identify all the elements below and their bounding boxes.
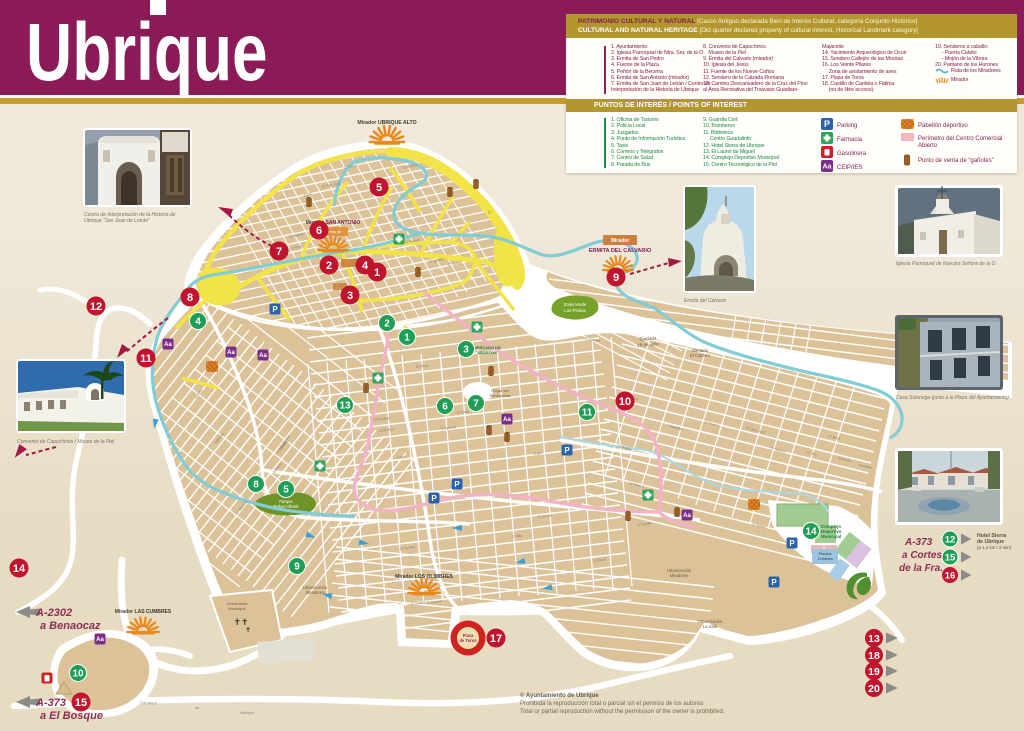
- svg-text:a Benaocaz: a Benaocaz: [40, 620, 101, 632]
- svg-text:10: 10: [619, 396, 631, 408]
- svg-text:a Cortes: a Cortes: [902, 550, 942, 561]
- svg-text:P: P: [771, 578, 777, 587]
- svg-text:Ubrique “San Juan de Letrán”: Ubrique “San Juan de Letrán”: [84, 218, 150, 224]
- svg-text:P: P: [789, 539, 795, 548]
- svg-text:A-373: A-373: [35, 697, 66, 709]
- svg-text:Pensionista: Pensionista: [490, 393, 511, 398]
- svg-text:15: 15: [945, 552, 956, 563]
- svg-text:Aa: Aa: [164, 342, 172, 348]
- svg-text:13: 13: [339, 401, 351, 412]
- svg-text:Aa: Aa: [227, 350, 235, 356]
- svg-text:Abierto: Abierto: [918, 143, 938, 149]
- svg-text:Iglesia Parroquial de Nuestra: Iglesia Parroquial de Nuestra Señora de …: [896, 261, 996, 267]
- svg-text:9: 9: [613, 272, 619, 284]
- svg-text:10: 10: [72, 669, 84, 680]
- svg-text:Carretera: Carretera: [140, 700, 158, 706]
- svg-text:2: 2: [326, 260, 332, 272]
- svg-text:Municipal: Municipal: [821, 534, 841, 539]
- svg-text:2: 2: [384, 319, 390, 330]
- svg-text:de: de: [195, 705, 200, 710]
- svg-text:14: 14: [805, 527, 817, 538]
- svg-text:Aa: Aa: [823, 164, 832, 171]
- svg-text:de la Fra.: de la Fra.: [899, 563, 943, 574]
- svg-text:Mirador LAS CUMBRES: Mirador LAS CUMBRES: [115, 609, 172, 615]
- svg-text:Casa Solariega (junto a la Pla: Casa Solariega (junto a la Plaza del Ayu…: [896, 395, 1009, 401]
- svg-text:18: 18: [868, 650, 880, 662]
- svg-text:ERMITA DEL CALVARIO: ERMITA DEL CALVARIO: [589, 248, 652, 254]
- svg-text:ABASTOS: ABASTOS: [477, 350, 497, 355]
- svg-text:19: 19: [868, 666, 880, 678]
- svg-text:Prohibida la reproducción tota: Prohibida la reproducción total o parcia…: [520, 701, 703, 707]
- svg-text:Convento de Capuchinos / Museo: Convento de Capuchinos / Museo de la Pie…: [17, 439, 115, 445]
- svg-text:de Toros: de Toros: [459, 638, 477, 643]
- svg-text:Ermita del Calvario: Ermita del Calvario: [684, 298, 726, 304]
- svg-text:a El Bosque: a El Bosque: [40, 710, 103, 722]
- svg-text:Aa: Aa: [683, 513, 691, 519]
- svg-text:(a 1,4 km / 2 min): (a 1,4 km / 2 min): [977, 545, 1012, 550]
- svg-text:Total or partial reproduction: Total or partial reproduction without th…: [520, 709, 725, 715]
- svg-text:Ubrique: Ubrique: [240, 710, 255, 715]
- svg-text:Gasolinera: Gasolinera: [837, 151, 867, 157]
- svg-text:A-2302: A-2302: [35, 607, 72, 619]
- svg-text:Perímetro del Centro Comercial: Perímetro del Centro Comercial: [918, 136, 1002, 142]
- svg-text:13: 13: [868, 633, 880, 645]
- svg-text:14: 14: [13, 563, 26, 575]
- svg-text:1: 1: [374, 267, 380, 279]
- svg-text:El Cabrero: El Cabrero: [690, 353, 711, 358]
- svg-text:12: 12: [945, 534, 956, 545]
- svg-text:Aa: Aa: [503, 417, 511, 423]
- svg-text:P: P: [824, 119, 830, 129]
- svg-text:15: 15: [75, 697, 87, 709]
- svg-text:La Salá: La Salá: [703, 624, 718, 629]
- svg-text:A-373: A-373: [904, 537, 933, 548]
- svg-text:12: 12: [90, 301, 102, 313]
- svg-text:Parking: Parking: [837, 123, 857, 129]
- svg-text:7: 7: [473, 399, 479, 410]
- svg-text:Aa: Aa: [96, 637, 104, 643]
- svg-text:1: 1: [404, 333, 410, 344]
- svg-text:11: 11: [582, 408, 593, 419]
- svg-text:17: 17: [490, 633, 502, 645]
- svg-text:11: 11: [140, 353, 152, 365]
- svg-text:© Ayuntamiento de Ubrique: © Ayuntamiento de Ubrique: [520, 692, 599, 699]
- svg-text:5: 5: [283, 485, 289, 496]
- svg-text:P: P: [272, 305, 278, 314]
- svg-text:CEIP/IES: CEIP/IES: [837, 165, 862, 171]
- svg-text:P: P: [454, 480, 460, 489]
- svg-text:Miradores: Miradores: [670, 573, 689, 578]
- svg-text:P: P: [431, 494, 437, 503]
- svg-text:Pabellón deportivo: Pabellón deportivo: [918, 123, 968, 129]
- svg-text:Miradores: Miradores: [306, 590, 325, 595]
- svg-text:Aa: Aa: [259, 353, 267, 359]
- svg-text:3: 3: [463, 345, 469, 356]
- svg-text:4: 4: [195, 317, 201, 328]
- svg-text:Farmacia: Farmacia: [837, 137, 863, 143]
- svg-text:7: 7: [276, 246, 282, 258]
- svg-text:20: 20: [868, 683, 880, 695]
- svg-text:9: 9: [294, 562, 300, 573]
- svg-text:8: 8: [253, 480, 259, 491]
- svg-text:16: 16: [945, 570, 956, 581]
- svg-text:6: 6: [442, 402, 448, 413]
- svg-text:4: 4: [362, 260, 369, 272]
- svg-text:P: P: [564, 446, 570, 455]
- svg-text:8: 8: [187, 292, 193, 304]
- svg-text:3: 3: [347, 290, 353, 302]
- svg-text:Mirador: Mirador: [611, 238, 629, 244]
- svg-text:Mirador LOS OLIMBRES: Mirador LOS OLIMBRES: [395, 574, 453, 580]
- svg-text:6: 6: [316, 225, 322, 237]
- svg-text:18 de Julio: 18 de Julio: [637, 341, 660, 348]
- svg-text:Punto de venta de “gañotes”: Punto de venta de “gañotes”: [918, 158, 994, 164]
